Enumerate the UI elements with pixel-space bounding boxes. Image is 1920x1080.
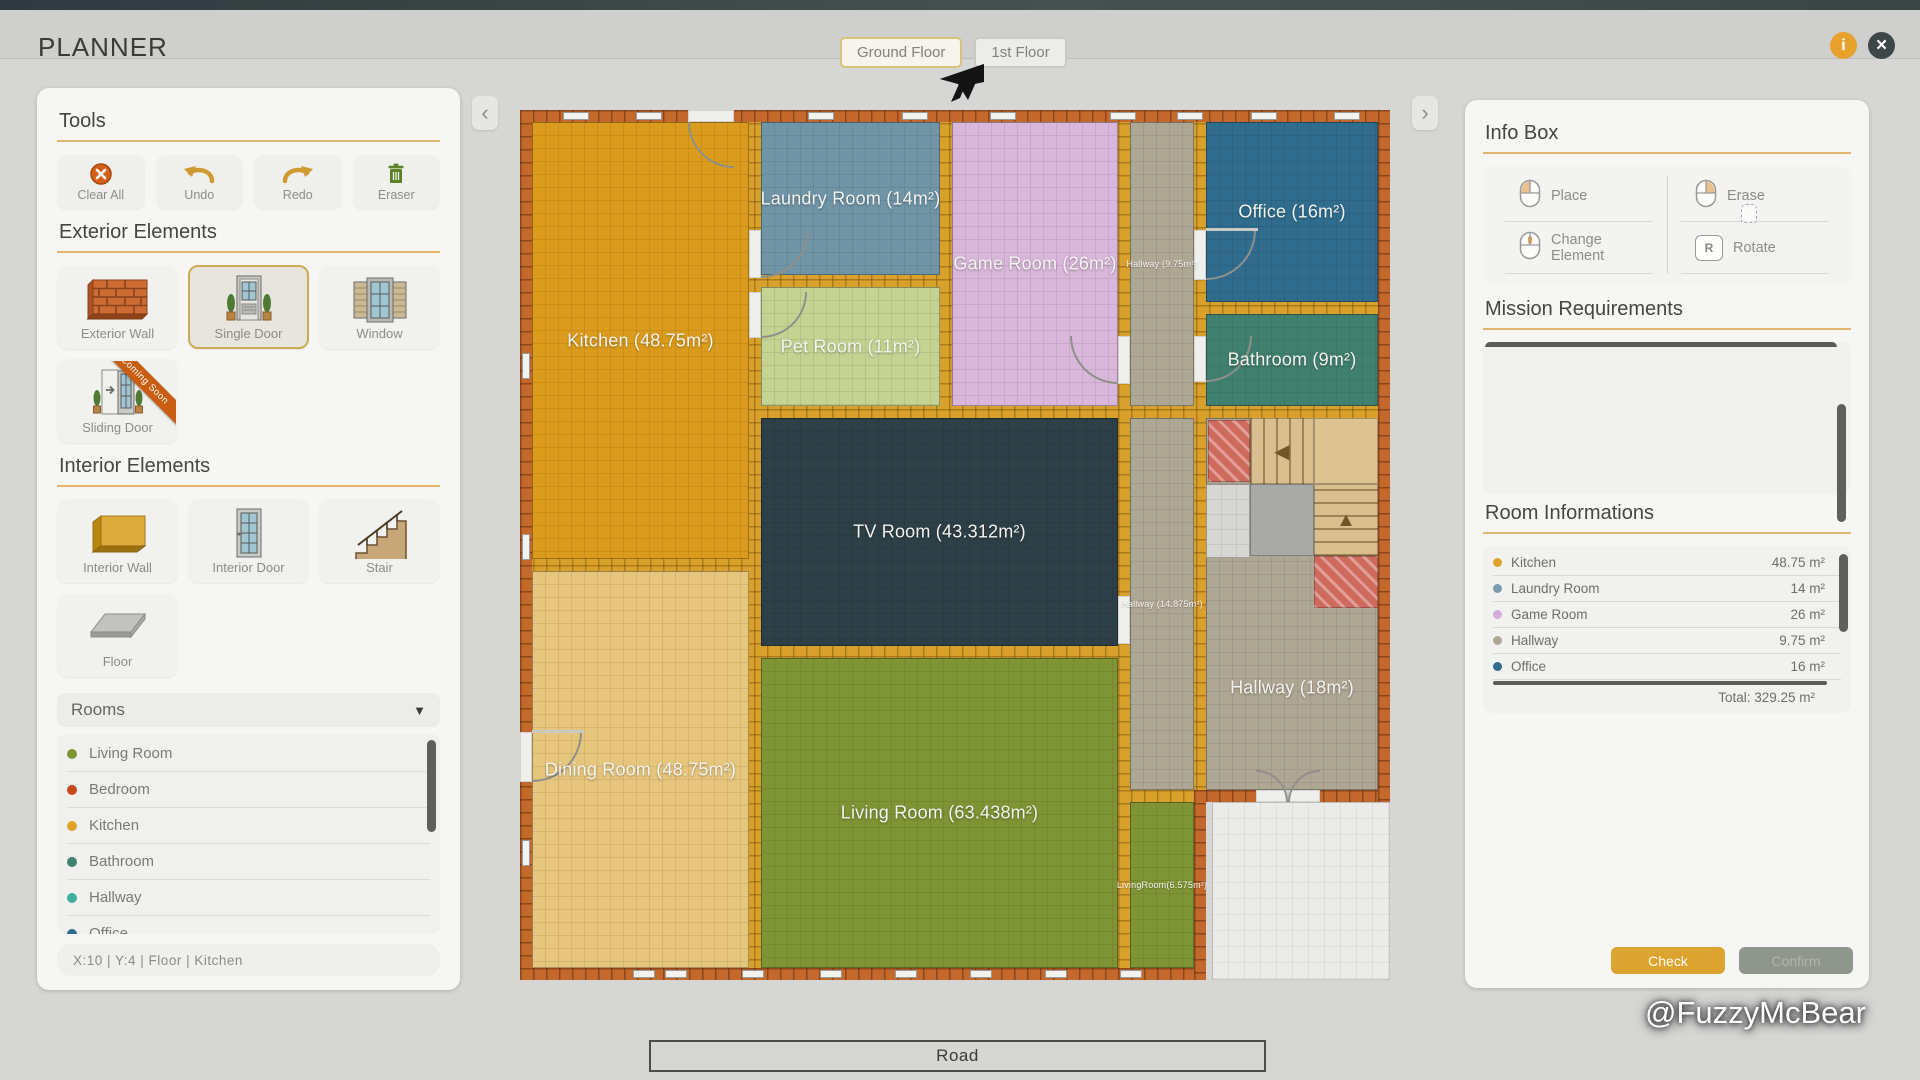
room-color-dot [1493,610,1502,619]
exterior-wall-segment [520,968,1206,980]
room-color-dot [67,857,77,867]
tab-1st-floor[interactable]: 1st Floor [974,37,1066,68]
room-label-pet-room: Pet Room (11m²) [781,336,921,357]
window-mark [522,353,530,379]
room-color-dot [67,893,77,903]
mouse-right-icon [1695,179,1717,213]
rooms-list-item-kitchen[interactable]: Kitchen [67,808,430,844]
element-exterior-wall[interactable]: Exterior Wall [57,265,178,349]
single-door-icon [221,267,277,326]
door-opening [1118,336,1130,384]
room-info-total: Total: 329.25 m² [1493,685,1841,707]
window-mark [1251,112,1277,120]
floorplan-canvas[interactable]: Kitchen (48.75m²)Dining Room (48.75m²)La… [520,110,1390,980]
room-label-office: Office (16m²) [1238,202,1345,223]
cursor-arrow [938,62,986,104]
clear-all-button[interactable]: Clear All [57,155,145,209]
window-mark [970,970,992,978]
room-informations-box: Kitchen48.75 m²Laundry Room14 m²Game Roo… [1483,546,1851,713]
stair-steps-h: ▲ [1314,484,1378,556]
key-r-icon: R [1695,235,1723,261]
rooms-list-scrollbar[interactable] [427,740,436,832]
room-color-dot [1493,662,1502,671]
info-action-change-element: Change Element [1505,228,1653,274]
rooms-list-item-bedroom[interactable]: Bedroom [67,772,430,808]
room-info-rows: Kitchen48.75 m²Laundry Room14 m²Game Roo… [1493,550,1841,680]
window-mark [1334,112,1360,120]
clear-all-icon [89,162,113,186]
room-outside-area[interactable] [1212,802,1390,980]
rooms-dropdown[interactable]: Rooms ▼ [57,693,440,727]
window-mark [895,970,917,978]
title-strip [0,0,1920,10]
window-mark [902,112,928,120]
room-label-game-room: Game Room (26m²) [953,254,1116,275]
rooms-list-item-bathroom[interactable]: Bathroom [67,844,430,880]
room-label-hallway-mid: Hallway (14.875m²) [1121,599,1203,609]
exterior-elements-grid: Exterior WallSingle DoorWindowSliding Do… [57,265,440,443]
interior-elements-grid: Interior WallInterior DoorStairFloor [57,499,440,677]
room-label-hallway-main: Hallway (18m²) [1230,678,1354,699]
window-mark [1045,970,1067,978]
info-box: PlaceEraseChange ElementRRotate [1483,166,1851,284]
check-button[interactable]: Check [1611,947,1725,974]
room-color-dot [67,785,77,795]
element-floor[interactable]: Floor [57,593,178,677]
rooms-list-item-living-room[interactable]: Living Room [67,736,430,772]
eraser-button[interactable]: Eraser [353,155,441,209]
room-hallway-mid[interactable]: Hallway (14.875m²) [1130,418,1194,790]
tools-buttons: Clear AllUndoRedoEraser [57,155,440,209]
room-label-kitchen: Kitchen (48.75m²) [567,330,713,351]
window-mark [522,534,530,560]
stair-pad [1250,484,1314,556]
room-living-room-strip[interactable]: LivingRoom(6.575m²) [1130,802,1194,968]
chevron-right-icon: › [1421,100,1428,126]
room-info-row-office: Office16 m² [1493,654,1841,680]
door-panel [532,730,584,733]
undo-button[interactable]: Undo [156,155,244,209]
exterior-elements-heading: Exterior Elements [57,219,440,253]
room-tv-room[interactable]: TV Room (43.312m²) [761,418,1118,646]
window-mark [808,112,834,120]
right-panel: Info Box PlaceEraseChange ElementRRotate… [1465,100,1869,988]
interior-wall-icon [88,501,148,560]
stair-hatch [1208,420,1250,482]
room-label-hallway-top: Hallway (9.75m²) [1126,259,1197,269]
room-office[interactable]: Office (16m²) [1206,122,1378,302]
element-single-door[interactable]: Single Door [188,265,309,349]
element-window[interactable]: Window [319,265,440,349]
dropdown-arrow-icon: ▼ [413,703,426,718]
cursor-status-bar: X:10 | Y:4 | Floor | Kitchen [57,944,440,976]
door-opening [520,732,532,782]
room-info-row-laundry-room: Laundry Room14 m² [1493,576,1841,602]
collapse-left-button[interactable]: ‹ [472,96,498,130]
room-info-row-kitchen: Kitchen48.75 m² [1493,550,1841,576]
hand-cursor [1741,204,1757,223]
mouse-left-icon [1519,179,1541,213]
door-opening [749,230,761,278]
redo-icon [282,162,314,186]
info-box-heading: Info Box [1483,120,1851,154]
room-info-row-hallway: Hallway9.75 m² [1493,628,1841,654]
watermark: @FuzzyMcBear [1645,995,1866,1031]
room-color-dot [1493,636,1502,645]
room-living-room[interactable]: Living Room (63.438m²) [761,658,1118,968]
rooms-list-item-hallway[interactable]: Hallway [67,880,430,916]
door-opening [749,292,761,338]
window-mark [522,840,530,866]
element-stair[interactable]: Stair [319,499,440,583]
window-mark [990,112,1016,120]
stair-landing [1314,418,1378,484]
room-hallway-top[interactable]: Hallway (9.75m²) [1130,122,1194,406]
window-mark [1110,112,1136,120]
window-mark [633,970,655,978]
interior-elements-heading: Interior Elements [57,453,440,487]
room-info-row-game-room: Game Room26 m² [1493,602,1841,628]
room-color-dot [67,821,77,831]
top-bar: PLANNER Ground Floor1st Floor i × [0,10,1920,59]
rooms-list-item-office[interactable]: Office [67,916,430,934]
window-mark [742,970,764,978]
collapse-right-button[interactable]: › [1412,96,1438,130]
stair-steps-v: ◀ [1250,418,1314,484]
interior-door-icon [229,501,269,560]
exterior-wall-segment [1378,110,1390,802]
mouse-middle-icon [1519,231,1541,265]
app-title: PLANNER [38,32,168,63]
stair-arrow-icon: ▲ [1336,509,1356,532]
mission-requirements-box [1483,342,1851,494]
window-mark [563,112,589,120]
road-label: Road [649,1040,1266,1072]
stair-tiles [1206,484,1250,558]
stair-arrow-icon: ◀ [1274,439,1289,464]
door-opening [1194,336,1206,382]
rooms-list: Living RoomBedroomKitchenBathroomHallway… [57,734,440,934]
mission-requirements-heading: Mission Requirements [1483,296,1851,330]
door-panel [1206,228,1258,231]
room-color-dot [67,929,77,935]
mission-scrollbar[interactable] [1837,404,1846,522]
window-mark [820,970,842,978]
exterior-wall-icon [85,267,151,326]
room-label-bathroom: Bathroom (9m²) [1228,350,1357,371]
chevron-left-icon: ‹ [481,100,488,126]
door-opening [688,110,734,122]
room-color-dot [1493,584,1502,593]
element-interior-wall[interactable]: Interior Wall [57,499,178,583]
room-info-scrollbar[interactable] [1839,554,1848,632]
window-icon [350,267,410,326]
eraser-icon [386,162,406,186]
confirm-button[interactable]: Confirm [1739,947,1853,974]
undo-icon [183,162,215,186]
element-interior-door[interactable]: Interior Door [188,499,309,583]
close-icon[interactable]: × [1868,32,1895,59]
window-mark [665,970,687,978]
window-mark [1120,970,1142,978]
stair-hatch [1314,556,1378,608]
room-informations-heading: Room Informations [1483,500,1851,534]
stair-icon [350,501,410,560]
info-action-rotate: RRotate [1681,228,1829,274]
window-mark [636,112,662,120]
room-kitchen[interactable]: Kitchen (48.75m²) [532,122,749,559]
room-color-dot [1493,558,1502,567]
room-color-dot [67,749,77,759]
room-label-tv-room: TV Room (43.312m²) [853,522,1026,543]
floor-icon [88,595,148,654]
room-bathroom[interactable]: Bathroom (9m²) [1206,314,1378,406]
info-action-place: Place [1505,176,1653,222]
room-label-dining-room: Dining Room (48.75m²) [545,759,736,780]
info-icon[interactable]: i [1830,32,1857,59]
element-sliding-door[interactable]: Sliding DoorComing Soon [57,359,178,443]
room-label-living-room: Living Room (63.438m²) [841,803,1038,824]
left-panel: Tools Clear AllUndoRedoEraser Exterior E… [37,88,460,990]
door-opening [1194,230,1206,280]
room-label-living-room-strip: LivingRoom(6.575m²) [1117,880,1207,890]
room-dining-room[interactable]: Dining Room (48.75m²) [532,571,749,968]
room-label-laundry-room: Laundry Room (14m²) [761,188,941,209]
window-mark [1177,112,1203,120]
redo-button[interactable]: Redo [254,155,342,209]
tools-heading: Tools [57,108,440,142]
